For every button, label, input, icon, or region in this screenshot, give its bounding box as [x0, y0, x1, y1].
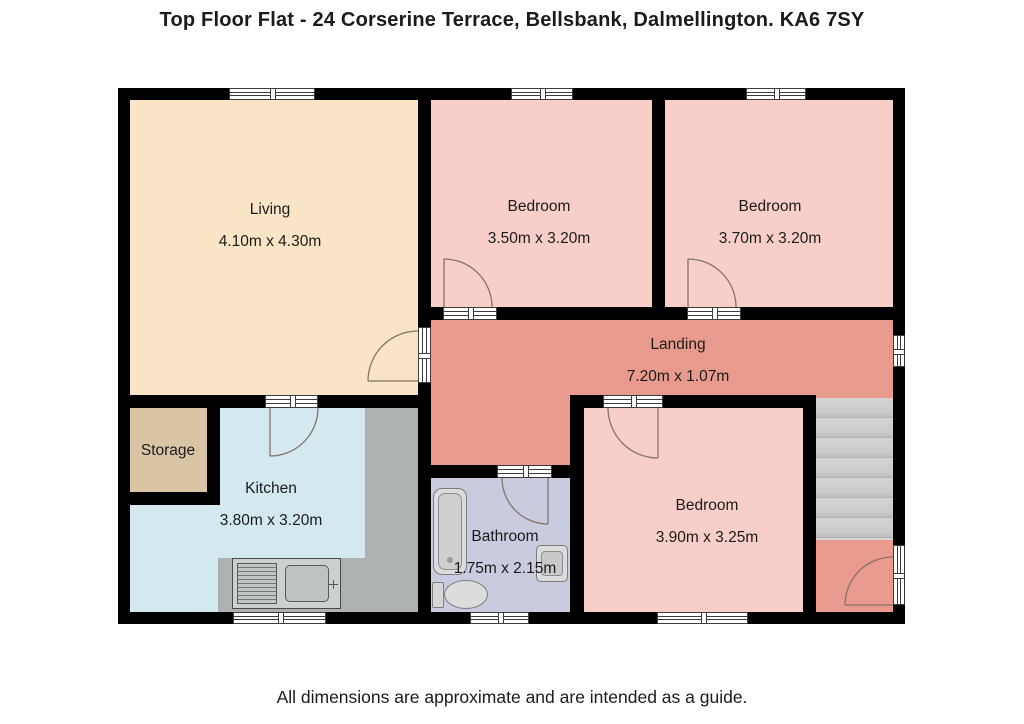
room-dims: 1.75m x 2.15m [454, 559, 557, 578]
staircase [816, 398, 893, 540]
wall-bedroom-stairs [803, 398, 816, 612]
bedroom-bottom-window [657, 612, 748, 624]
kitchen-window [233, 612, 326, 624]
kitchen-sink-unit [232, 558, 341, 609]
room-dims: 4.10m x 4.30m [219, 232, 322, 251]
bathroom-label: Bathroom 1.75m x 2.15m [454, 527, 557, 578]
landing-label: Landing 7.20m x 1.07m [627, 335, 730, 386]
bedroom-top-mid-window [511, 88, 573, 100]
bedroom-bottom-label: Bedroom 3.90m x 3.25m [656, 496, 759, 547]
wall-storage-right [207, 408, 220, 505]
room-name: Bathroom [454, 527, 557, 546]
hob-icon [237, 563, 277, 604]
room-dims: 3.70m x 3.20m [719, 229, 822, 248]
sink-icon [285, 565, 329, 602]
plan-title: Top Floor Flat - 24 Corserine Terrace, B… [0, 9, 1024, 32]
room-dims: 3.80m x 3.20m [220, 511, 323, 530]
bedroom-top-right-label: Bedroom 3.70m x 3.20m [719, 197, 822, 248]
room-name: Landing [627, 335, 730, 354]
room-name: Bedroom [719, 197, 822, 216]
bathroom-door-threshold [497, 465, 552, 478]
room-name: Kitchen [220, 479, 323, 498]
bedroom-top-mid-label: Bedroom 3.50m x 3.20m [488, 197, 591, 248]
room-name: Storage [141, 441, 195, 460]
bedroom-top-right-window [746, 88, 806, 100]
kitchen-door-threshold [265, 395, 318, 408]
wall-between-bedrooms [652, 100, 665, 307]
living-window [229, 88, 315, 100]
kitchen-label: Kitchen 3.80m x 3.20m [220, 479, 323, 530]
wall-outer-left [118, 88, 130, 624]
landing-extension-area [431, 398, 570, 465]
toilet-icon [444, 580, 488, 609]
room-name: Bedroom [488, 197, 591, 216]
bedroom-bottom-door-threshold [603, 395, 663, 408]
wall-storage-bottom [118, 492, 220, 505]
bedroom-top-right-door-threshold [687, 307, 741, 320]
storage-label: Storage [141, 441, 195, 460]
living-door-threshold [418, 327, 431, 383]
wall-bathroom-bedroom [570, 395, 584, 612]
tap-icon [329, 580, 338, 589]
entrance-door-threshold [893, 545, 905, 605]
bedroom-top-mid-door-threshold [443, 307, 497, 320]
room-name: Bedroom [656, 496, 759, 515]
disclaimer-text: All dimensions are approximate and are i… [0, 687, 1024, 708]
wall-under-bedrooms [431, 307, 893, 320]
bathroom-window [470, 612, 529, 624]
living-label: Living 4.10m x 4.30m [219, 200, 322, 251]
room-name: Living [219, 200, 322, 219]
room-dims: 7.20m x 1.07m [627, 367, 730, 386]
toilet-tank-icon [432, 582, 444, 608]
room-dims: 3.50m x 3.20m [488, 229, 591, 248]
floor-plan: Living 4.10m x 4.30m Bedroom 3.50m x 3.2… [118, 88, 905, 624]
landing-window [893, 335, 905, 367]
room-dims: 3.90m x 3.25m [656, 528, 759, 547]
